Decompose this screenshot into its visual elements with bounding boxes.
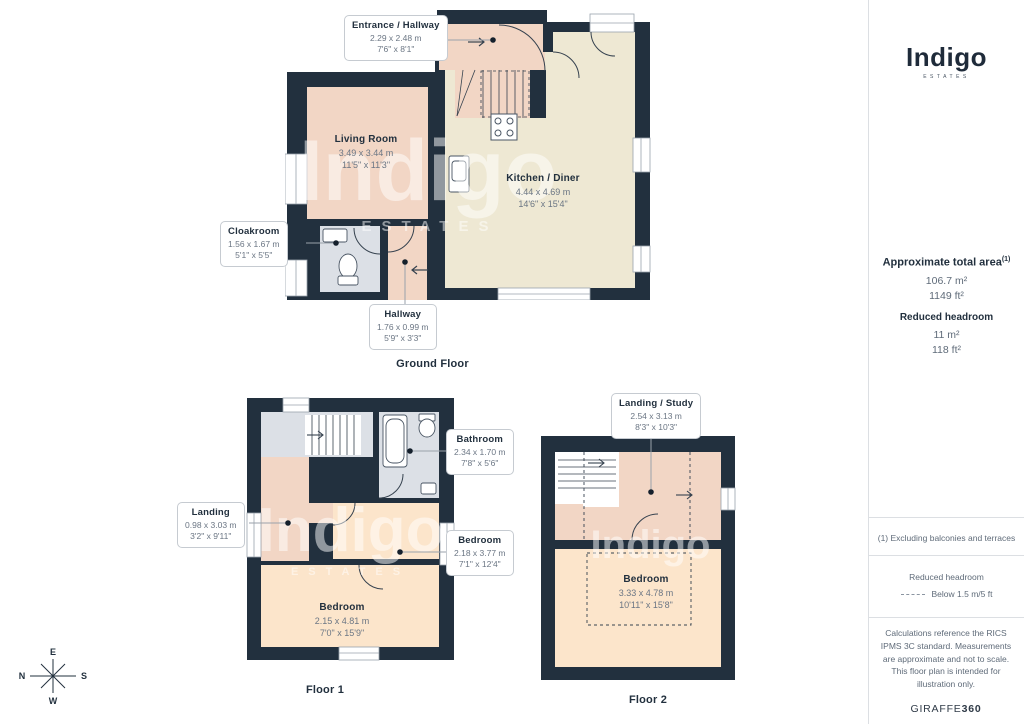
giraffe-suffix: 360 <box>962 703 982 715</box>
footnote-marker: (1) <box>1002 256 1011 263</box>
giraffe360-logo: GIRAFFE360 <box>874 703 1018 715</box>
room-dim-metric: 1.56 x 1.67 m <box>228 239 280 250</box>
room-dim-imperial: 7'8" x 5'6" <box>454 458 506 469</box>
room-dim-metric: 2.18 x 3.77 m <box>454 548 506 559</box>
sidebar-divider <box>868 0 869 724</box>
room-dim-imperial: 7'1" x 12'4" <box>454 559 506 570</box>
room-name: Bedroom <box>576 573 716 587</box>
dashed-line-icon <box>901 594 925 595</box>
divider-1 <box>868 517 1024 518</box>
room-name: Living Room <box>296 133 436 147</box>
kitchen-sink-icon <box>449 156 469 192</box>
room-dim-imperial: 7'6" x 8'1" <box>352 44 440 55</box>
room-dim-metric: 3.33 x 4.78 m <box>576 587 716 599</box>
room-dim-metric: 1.76 x 0.99 m <box>377 322 429 333</box>
footnote-text: (1) Excluding balconies and terraces <box>869 532 1024 545</box>
room-dim-metric: 2.54 x 3.13 m <box>619 411 693 422</box>
label-box-landing1: Landing 0.98 x 3.03 m 3'2" x 9'11" <box>177 502 245 548</box>
disclaimer-block: Calculations reference the RICS IPMS 3C … <box>874 627 1018 715</box>
total-area-label: Approximate total area(1) <box>869 256 1024 269</box>
room-dim-metric: 2.34 x 1.70 m <box>454 447 506 458</box>
compass-rose: E S W N <box>16 645 90 707</box>
stairs <box>555 452 619 507</box>
room-name: Entrance / Hallway <box>352 20 440 33</box>
room-dim-metric: 4.44 x 4.69 m <box>473 186 613 198</box>
disclaimer-text: Calculations reference the RICS IPMS 3C … <box>874 627 1018 691</box>
room-name: Bathroom <box>454 434 506 447</box>
floorplan-page: Indigo ESTATES Indigo ESTATES Indigo Ent… <box>0 0 1024 724</box>
room-dim-imperial: 5'1" x 5'5" <box>228 250 280 261</box>
logo-text: Indigo <box>869 42 1024 73</box>
legend-row: Below 1.5 m/5 ft <box>869 588 1024 601</box>
room-label-bedroom3: Bedroom 3.33 x 4.78 m 10'11" x 15'8" <box>576 573 716 611</box>
room-dim-metric: 2.29 x 2.48 m <box>352 33 440 44</box>
floor-title-ground: Ground Floor <box>370 358 495 370</box>
room-name: Landing <box>185 507 237 520</box>
floor-title-2: Floor 2 <box>608 694 688 706</box>
total-area-block: Approximate total area(1) 106.7 m² 1149 … <box>869 256 1024 304</box>
room-label-kitchen: Kitchen / Diner 4.44 x 4.69 m 14'6" x 15… <box>473 172 613 210</box>
room-name: Hallway <box>377 309 429 322</box>
room-dim-metric: 2.15 x 4.81 m <box>272 615 412 627</box>
room-dim-imperial: 3'2" x 9'11" <box>185 531 237 542</box>
label-box-landing2: Landing / Study 2.54 x 3.13 m 8'3" x 10'… <box>611 393 701 439</box>
floor2-plan <box>538 433 738 683</box>
room-dim-imperial: 5'9" x 3'3" <box>377 333 429 344</box>
room-dim-metric: 0.98 x 3.03 m <box>185 520 237 531</box>
label-box-cloakroom: Cloakroom 1.56 x 1.67 m 5'1" x 5'5" <box>220 221 288 267</box>
label-box-bedroom1: Bedroom 2.18 x 3.77 m 7'1" x 12'4" <box>446 530 514 576</box>
legend-label: Reduced headroom <box>869 571 1024 584</box>
label-box-entrance: Entrance / Hallway 2.29 x 2.48 m 7'6" x … <box>344 15 448 61</box>
total-area-imperial: 1149 ft² <box>869 289 1024 304</box>
windows <box>721 488 735 510</box>
divider-2 <box>868 555 1024 556</box>
compass-w: W <box>49 696 58 706</box>
room-name: Kitchen / Diner <box>473 172 613 186</box>
brand-logo: Indigo ESTATES <box>869 42 1024 80</box>
reduced-headroom-imperial: 118 ft² <box>869 343 1024 358</box>
legend-value: Below 1.5 m/5 ft <box>932 589 993 599</box>
room-dim-metric: 3.49 x 3.44 m <box>296 147 436 159</box>
room-label-living: Living Room 3.49 x 3.44 m 11'5" x 11'3" <box>296 133 436 171</box>
label-box-hallway: Hallway 1.76 x 0.99 m 5'9" x 3'3" <box>369 304 437 350</box>
room-dim-imperial: 11'5" x 11'3" <box>296 159 436 171</box>
room-name: Bedroom <box>272 601 412 615</box>
compass-s: S <box>81 671 87 681</box>
reduced-headroom-metric: 11 m² <box>869 328 1024 343</box>
divider-3 <box>868 617 1024 618</box>
room-name: Bedroom <box>454 535 506 548</box>
room-dim-imperial: 10'11" x 15'8" <box>576 599 716 611</box>
logo-subtext: ESTATES <box>869 74 1024 80</box>
label-box-bathroom: Bathroom 2.34 x 1.70 m 7'8" x 5'6" <box>446 429 514 475</box>
compass-e: E <box>50 647 56 657</box>
legend-block: Reduced headroom Below 1.5 m/5 ft <box>869 571 1024 601</box>
total-area-label-text: Approximate total area <box>883 257 1002 269</box>
floor-title-1: Floor 1 <box>285 684 365 696</box>
reduced-headroom-block: Reduced headroom 11 m² 118 ft² <box>869 312 1024 358</box>
room-name: Landing / Study <box>619 398 693 411</box>
reduced-headroom-label: Reduced headroom <box>869 312 1024 323</box>
stairs <box>305 415 361 455</box>
room-dim-imperial: 7'0" x 15'9" <box>272 627 412 639</box>
giraffe-prefix: GIRAFFE <box>910 703 961 715</box>
compass-n: N <box>19 671 26 681</box>
room-name: Cloakroom <box>228 226 280 239</box>
room-dim-imperial: 14'6" x 15'4" <box>473 198 613 210</box>
room-label-bedroom2: Bedroom 2.15 x 4.81 m 7'0" x 15'9" <box>272 601 412 639</box>
room-dim-imperial: 8'3" x 10'3" <box>619 422 693 433</box>
total-area-metric: 106.7 m² <box>869 274 1024 289</box>
footnote-block: (1) Excluding balconies and terraces <box>869 532 1024 545</box>
hob-icon <box>491 114 517 140</box>
